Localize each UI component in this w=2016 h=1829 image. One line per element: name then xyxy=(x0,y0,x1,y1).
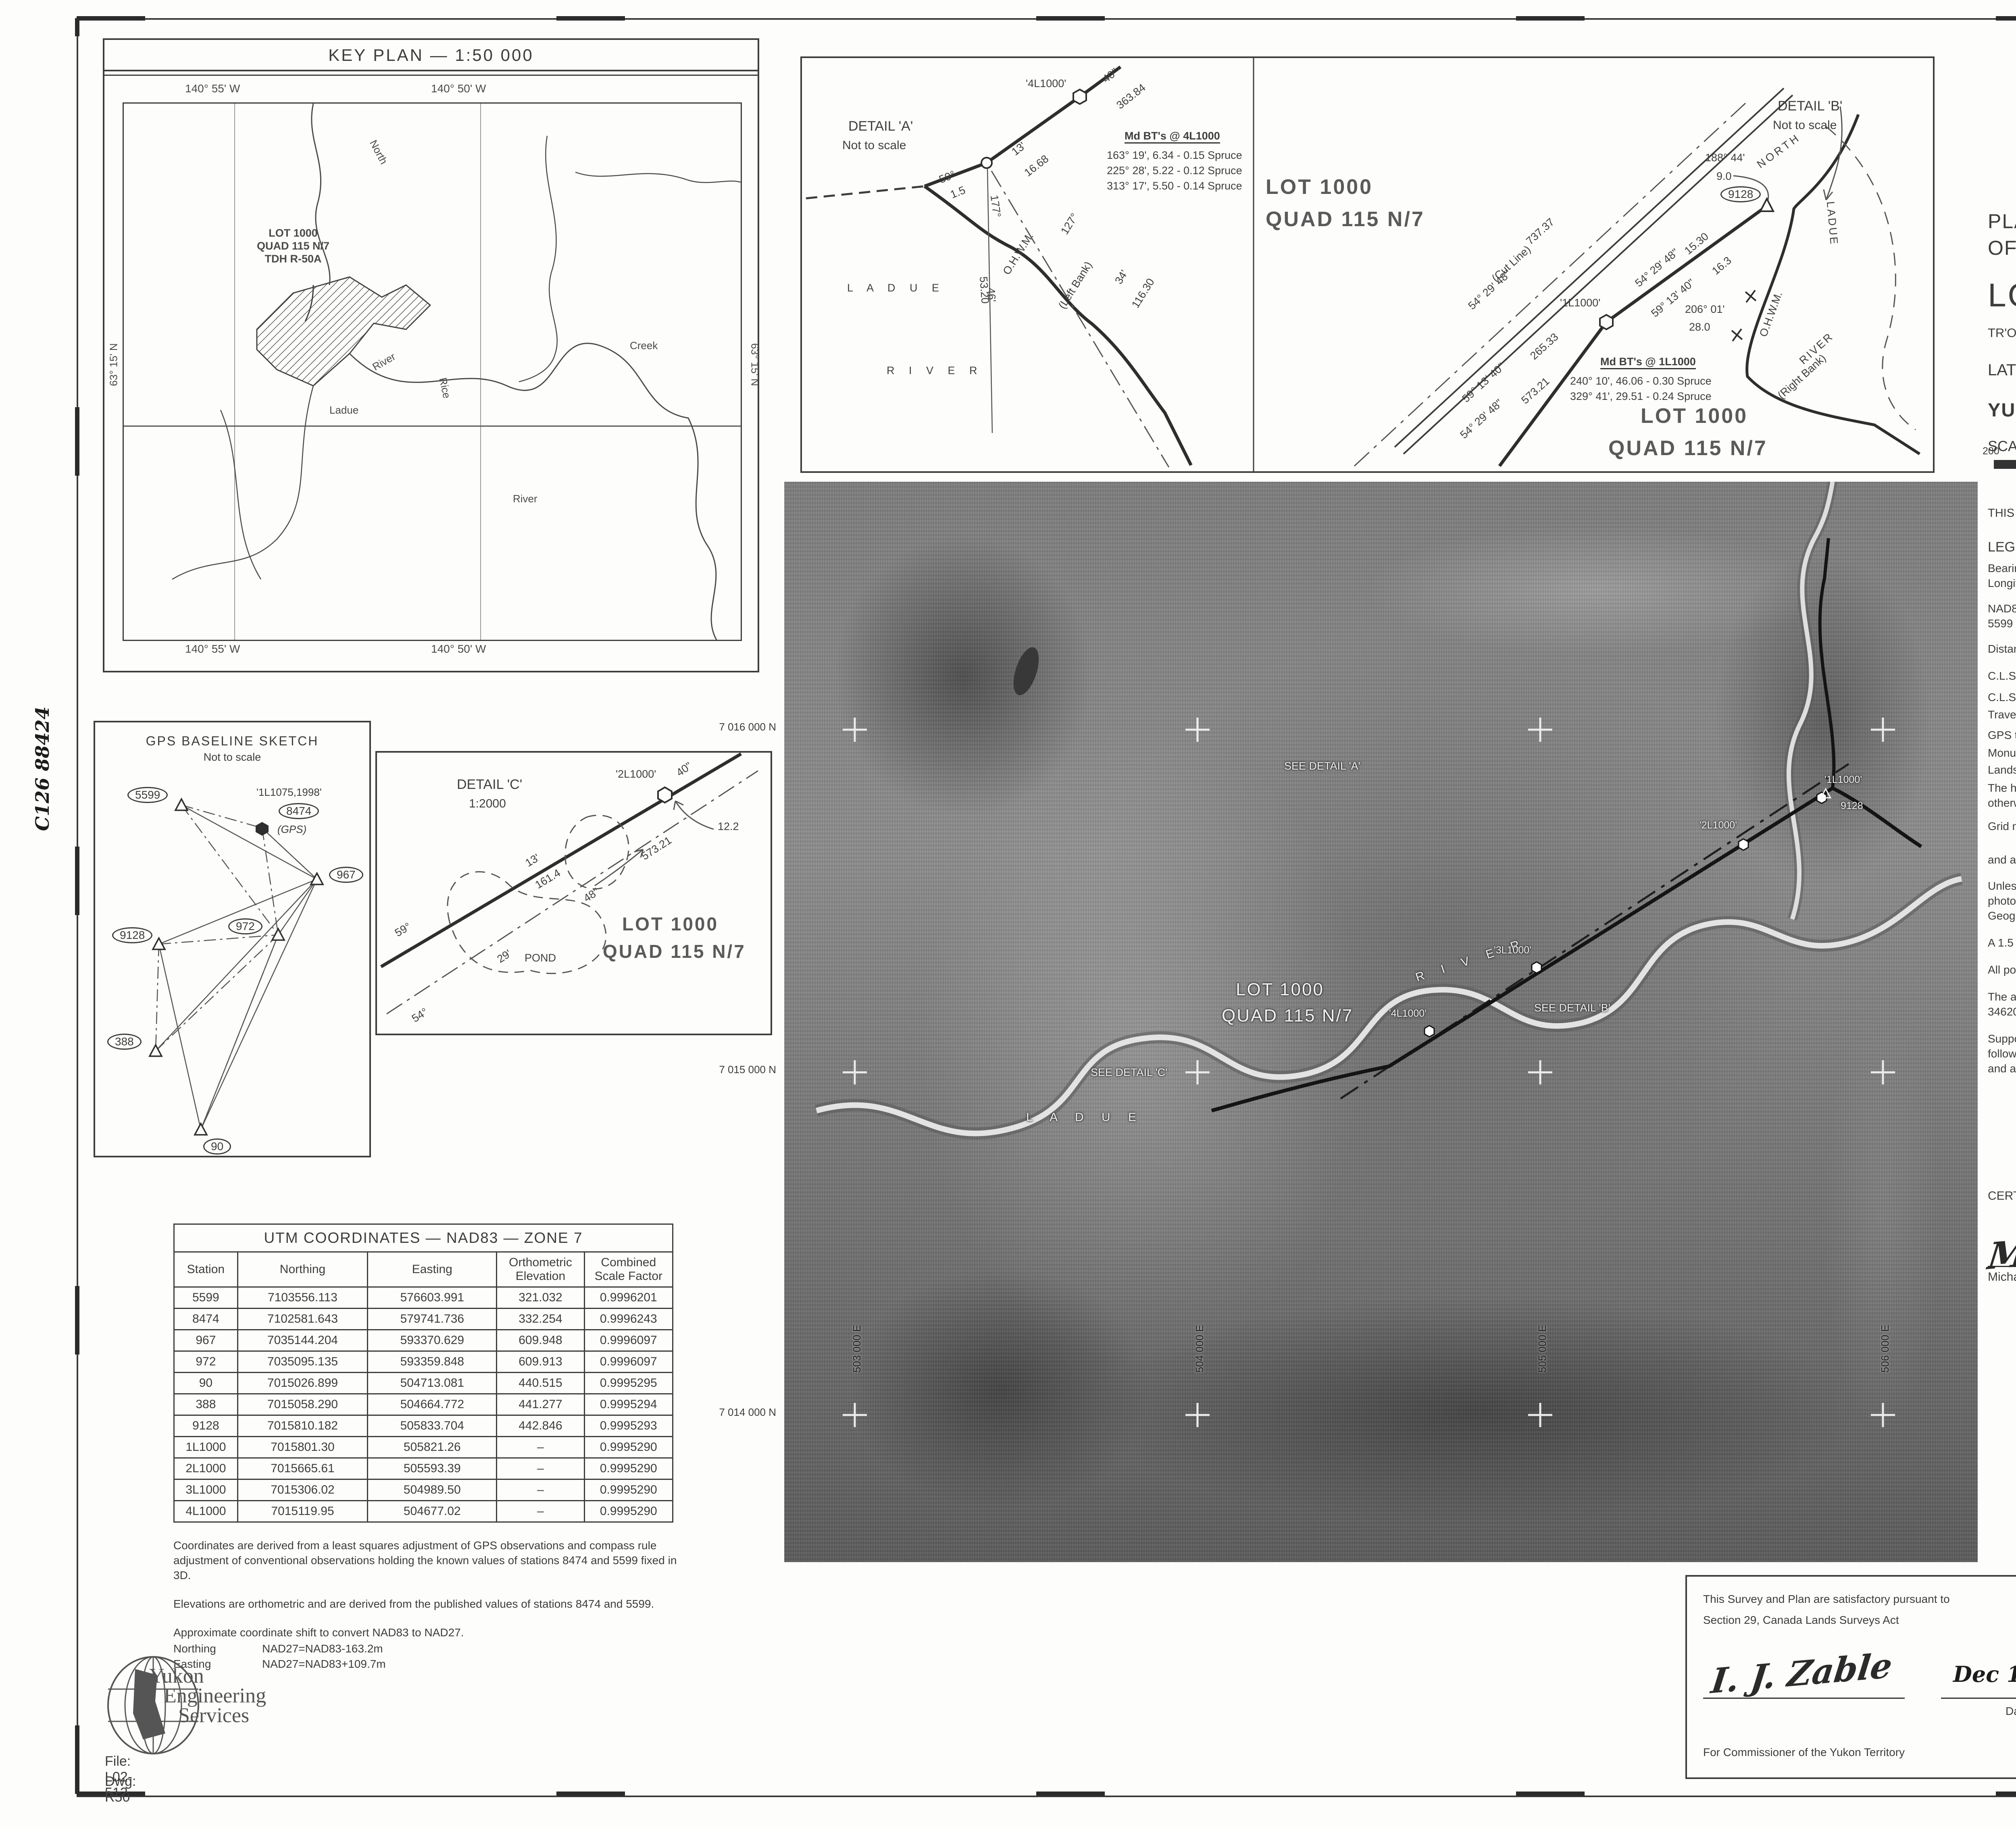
key-plan-title: KEY PLAN — 1:50 000 xyxy=(104,40,758,71)
utm-note-1: Coordinates are derived from a least squ… xyxy=(173,1538,677,1583)
commissioner-date-label: Date / xyxy=(2006,1705,2016,1718)
utm-col-easting: Easting xyxy=(368,1252,497,1287)
keyplan-lot-line1: LOT 1000 xyxy=(257,227,329,239)
legend-intro-1: Bearings are UTM Grid, derived from GPS … xyxy=(1988,561,2016,591)
scale-bar: 200 100 0 200 400 600 800 1000 metres xyxy=(1990,445,2016,474)
gps-station-8474: 8474 xyxy=(279,803,319,819)
keyplan-rice-creek xyxy=(519,136,557,382)
utm-table-row: 1L1000 7015801.30 505821.26 – 0.9995290 xyxy=(174,1437,673,1458)
legend-list: C.L.S. 77 Post found shown thus C.L.S. 7… xyxy=(1988,665,2016,776)
detail-a-bt-title: Md BT's @ 4L1000 xyxy=(1125,130,1220,144)
detail-b-title: DETAIL 'B' xyxy=(1778,98,1842,114)
keyplan-creeks-sw xyxy=(172,386,313,579)
detail-c-panel: DETAIL 'C' 1:2000 '2L1000' 40" 12.2 13' … xyxy=(375,751,772,1035)
shift-northing-value: NAD27=NAD83-163.2m xyxy=(262,1642,677,1655)
utm-cell-scale-factor: 0.9995294 xyxy=(584,1394,673,1415)
grid-note-line2: and are shown thus xyxy=(1988,853,2016,866)
keyplan-word-river-lower: River xyxy=(513,493,537,505)
photo-lot2: QUAD 115 N/7 xyxy=(1222,1006,1353,1026)
utm-col-scale-factor: Combined Scale Factor xyxy=(584,1252,673,1287)
keyplan-word-creek: Creek xyxy=(630,339,658,352)
detail-a-lot2: QUAD 115 N/7 xyxy=(1266,207,1425,231)
commissioner-for-label: For Commissioner of the Yukon Territory xyxy=(1703,1746,1905,1759)
legend-row-gps-suffix: Monuments occupied by GPS suffixed thus … xyxy=(1988,746,2016,759)
fold-ticks-left xyxy=(75,18,79,1794)
keyplan-lot-line2: QUAD 115 N/7 xyxy=(257,239,329,252)
detail-b-d280: 28.0 xyxy=(1689,321,1710,333)
photo-grid-crosses xyxy=(843,718,1895,1427)
utm-cell-easting: 579741.736 xyxy=(368,1309,497,1330)
utm-cell-station: 1L1000 xyxy=(174,1437,238,1458)
photo-see-detail-a: SEE DETAIL 'A' xyxy=(1284,760,1360,772)
utm-table-row: 972 7035095.135 593359.848 609.913 0.999… xyxy=(174,1351,673,1373)
commissioner-box: This Survey and Plan are satisfactory pu… xyxy=(1685,1575,2016,1779)
utm-table-row: 3L1000 7015306.02 504989.50 – 0.9995290 xyxy=(174,1479,673,1501)
surveyor-signature-area: M Kearney Michael T. Kearney C.L.S. xyxy=(1988,1226,2016,1284)
key-plan-title-rule xyxy=(104,71,758,76)
legend-row-post-found: C.L.S. 77 Post found shown thus xyxy=(1988,665,2016,682)
utm-cell-easting: 593359.848 xyxy=(368,1351,497,1373)
fold-ticks-bottom xyxy=(77,1792,2016,1796)
utm-cell-northing: 7103556.113 xyxy=(237,1287,368,1309)
photo-station-4l1000: '4L1000' xyxy=(1389,1008,1427,1020)
firm-name: Yukon Engineering Services xyxy=(149,1664,266,1727)
detail-a-d46: 46' xyxy=(985,287,998,302)
utm-cell-elevation: 442.846 xyxy=(497,1415,584,1437)
general-note: A 1.5 metre iron marker post and plaque … xyxy=(1988,935,2016,950)
utm-cell-easting: 593370.629 xyxy=(368,1330,497,1351)
utm-cell-station: 967 xyxy=(174,1330,238,1351)
detail-a-ladue: L A D U E xyxy=(847,282,945,294)
utm-table-row: 967 7035144.204 593370.629 609.948 0.999… xyxy=(174,1330,673,1351)
legend-row-traverse: Traverse lines and stations shown thus xyxy=(1988,708,2016,721)
photo-northing-7015: 7 015 000 N xyxy=(685,1063,776,1076)
utm-cell-northing: 7035144.204 xyxy=(237,1330,368,1351)
general-note: All posts placed in this survey have bee… xyxy=(1988,962,2016,977)
lot-title: LOT 1000, QUAD 115 N/7 xyxy=(1988,277,2016,314)
utm-cell-scale-factor: 0.9995293 xyxy=(584,1415,673,1437)
legend-label: C.L.S. 77 Post placed shown thus xyxy=(1988,691,2016,704)
photo-easting-506: 506 000 E xyxy=(1879,1325,1891,1373)
keyplan-lot-line3: TDH R-50A xyxy=(257,252,329,265)
photo-easting-504: 504 000 E xyxy=(1193,1325,1206,1373)
utm-cell-easting: 504989.50 xyxy=(368,1479,497,1501)
utm-table-row: 388 7015058.290 504664.772 441.277 0.999… xyxy=(174,1394,673,1415)
detail-c-station: '2L1000' xyxy=(616,768,656,780)
utm-note-3: Approximate coordinate shift to convert … xyxy=(173,1625,677,1640)
utm-cell-station: 2L1000 xyxy=(174,1458,238,1479)
utm-cell-northing: 7035095.135 xyxy=(237,1351,368,1373)
keyplan-creek xyxy=(575,172,741,183)
utm-cell-northing: 7015665.61 xyxy=(237,1458,368,1479)
legend-label: Monuments occupied by GPS suffixed thus xyxy=(1988,747,2016,759)
utm-cell-station: 388 xyxy=(174,1394,238,1415)
detail-a-post-4l1000 xyxy=(1073,89,1086,104)
left-margin-annotation: C126 88424 xyxy=(31,684,53,853)
gps-triangles xyxy=(150,799,323,1135)
legend-label: Lands dealt with by this plan bounded th… xyxy=(1988,764,2016,776)
detail-a-bt-item: 163° 19', 6.34 - 0.15 Spruce xyxy=(1107,148,1242,163)
keyplan-long-topright: 140° 50' W xyxy=(431,82,486,95)
certification-block: CERTIFIED CORRECT : Re: Canada Lands Sur… xyxy=(1988,1189,2016,1203)
utm-cell-scale-factor: 0.9995290 xyxy=(584,1501,673,1522)
photo-see-detail-b: SEE DETAIL 'B' xyxy=(1534,1002,1610,1014)
utm-table-body: 5599 7103556.113 576603.991 321.032 0.99… xyxy=(174,1287,673,1522)
utm-cell-elevation: 440.515 xyxy=(497,1373,584,1394)
utm-cell-elevation: 441.277 xyxy=(497,1394,584,1415)
gps-monument-8474 xyxy=(256,822,269,836)
fold-ticks-top xyxy=(77,16,2016,21)
photo-northing-7016: 7 016 000 N xyxy=(685,721,776,733)
keyplan-long-topleft: 140° 55' W xyxy=(185,82,240,95)
latlong-line: LATITUDE 63° 16', LONGITUDE 140° 54' (AP… xyxy=(1988,361,2016,379)
title-line2: OF SURVEY OF xyxy=(1988,236,2016,260)
photo-easting-503: 503 000 E xyxy=(851,1325,863,1373)
utm-cell-northing: 7015058.290 xyxy=(237,1394,368,1415)
utm-cell-station: 3L1000 xyxy=(174,1479,238,1501)
gps-station-967: 967 xyxy=(329,867,363,883)
scale-bar-segments xyxy=(1994,460,2016,469)
detail-b-bt-item: 240° 10', 46.06 - 0.30 Spruce xyxy=(1570,373,1712,389)
photo-station-2l1000: '2L1000' xyxy=(1699,820,1737,831)
detail-b-scale: Not to scale xyxy=(1773,119,1837,132)
gps-station-9128: 9128 xyxy=(112,927,152,943)
photo-see-detail-c: SEE DETAIL 'C' xyxy=(1091,1066,1167,1079)
detail-b-station-1l1000: '1L1000' xyxy=(1560,297,1600,309)
utm-col-elevation: Orthometric Elevation xyxy=(497,1252,584,1287)
utm-table: UTM COORDINATES — NAD83 — ZONE 7 Station… xyxy=(173,1223,673,1523)
legend-label: C.L.S. 77 Post found shown thus xyxy=(1988,670,2016,682)
utm-cell-scale-factor: 0.9995290 xyxy=(584,1458,673,1479)
detail-b-station-9128: 9128 xyxy=(1720,186,1761,202)
detail-b-d90: 9.0 xyxy=(1716,170,1732,183)
utm-table-row: 90 7015026.899 504713.081 440.515 0.9995… xyxy=(174,1373,673,1394)
detail-a-river: R I V E R xyxy=(887,364,983,377)
general-note: Support information is contained in supp… xyxy=(1988,1031,2016,1076)
detail-b-bt-list: 240° 10', 46.06 - 0.30 Spruce329° 41', 2… xyxy=(1570,373,1712,404)
detail-a-title: DETAIL 'A' xyxy=(848,119,913,134)
detail-c-traverse xyxy=(387,771,758,1014)
utm-cell-elevation: – xyxy=(497,1458,584,1479)
utm-cell-northing: 7015119.95 xyxy=(237,1501,368,1522)
gps-station-note: '1L1075,1998' xyxy=(256,786,322,799)
title-line1: PLAN AND FIELD NOTES xyxy=(1988,210,2016,233)
details-panel: DETAIL 'A' Not to scale '4L1000' 40" 363… xyxy=(800,56,1935,473)
detail-b-bt-title: Md BT's @ 1L1000 xyxy=(1600,356,1696,369)
utm-cell-scale-factor: 0.9996201 xyxy=(584,1287,673,1309)
keyplan-long-bottomright: 140° 50' W xyxy=(431,643,486,655)
detail-c-title: DETAIL 'C' xyxy=(457,777,522,793)
utm-table-row: 5599 7103556.113 576603.991 321.032 0.99… xyxy=(174,1287,673,1309)
keyplan-long-bottomleft: 140° 55' W xyxy=(185,643,240,655)
lot-subtitle: TR'ONDEK HWECH'IN SETTLEMENT LAND SELECT… xyxy=(1988,326,2016,340)
utm-cell-easting: 504677.02 xyxy=(368,1501,497,1522)
detail-b-station-9128-triangle xyxy=(1760,199,1773,211)
utm-table-row: 2L1000 7015665.61 505593.39 – 0.9995290 xyxy=(174,1458,673,1479)
commissioner-line2: Section 29, Canada Lands Surveys Act xyxy=(1703,1614,2016,1627)
detail-b-post-1l1000 xyxy=(1600,315,1613,329)
utm-cell-station: 9128 xyxy=(174,1415,238,1437)
general-notes: Unless shown otherwise on the body of th… xyxy=(1988,878,2016,1076)
keyplan-word-ladue: Ladue xyxy=(329,404,358,416)
utm-cell-scale-factor: 0.9995290 xyxy=(584,1437,673,1458)
utm-cell-elevation: – xyxy=(497,1501,584,1522)
detail-a-lot1: LOT 1000 xyxy=(1266,175,1373,199)
detail-c-pond: POND xyxy=(525,952,556,964)
utm-coordinates-section: UTM COORDINATES — NAD83 — ZONE 7 Station… xyxy=(173,1223,677,1671)
certified-correct-line: CERTIFIED CORRECT : Re: Canada Lands Sur… xyxy=(1988,1189,2016,1203)
utm-cell-elevation: 609.948 xyxy=(497,1330,584,1351)
utm-cell-scale-factor: 0.9996097 xyxy=(584,1351,673,1373)
detail-c-lot2: QUAD 115 N/7 xyxy=(603,941,746,962)
utm-cell-elevation: – xyxy=(497,1479,584,1501)
keyplan-lat-right: 63° 15' N xyxy=(749,343,761,386)
orthophoto: LOT 1000 QUAD 115 N/7 SEE DETAIL 'A' SEE… xyxy=(784,482,1978,1562)
firm-dwg: Dwg: R50 xyxy=(105,1774,136,1805)
photo-lot-boundary-north xyxy=(1820,538,1834,788)
keyplan-river-main xyxy=(350,343,716,640)
detail-a-bt-list: 163° 19', 6.34 - 0.15 Spruce225° 28', 5.… xyxy=(1107,148,1242,194)
gps-baseline-panel: GPS BASELINE SKETCH Not to scale xyxy=(94,721,371,1157)
legend-title: LEGEND : xyxy=(1988,539,2016,555)
utm-cell-station: 4L1000 xyxy=(174,1501,238,1522)
legend-row-bounded: Lands dealt with by this plan bounded th… xyxy=(1988,764,2016,776)
gps-station-388: 388 xyxy=(107,1034,142,1050)
utm-note-2: Elevations are orthometric and are deriv… xyxy=(173,1596,677,1611)
detail-a-bt-item: 225° 28', 5.22 - 0.12 Spruce xyxy=(1107,163,1242,178)
utm-cell-easting: 505821.26 xyxy=(368,1437,497,1458)
utm-cell-station: 5599 xyxy=(174,1287,238,1309)
detail-b-lot1: LOT 1000 xyxy=(1641,404,1748,428)
legend-label: GPS traverse stations shown thus xyxy=(1988,729,2016,742)
survey-plan-sheet: C126 88424 C126 88424 KEY PLAN — 1:50 00… xyxy=(0,0,2016,1829)
utm-table-row: 8474 7102581.643 579741.736 332.254 0.99… xyxy=(174,1309,673,1330)
legend-label: Traverse lines and stations shown thus xyxy=(1988,708,2016,721)
utm-cell-scale-factor: 0.9995290 xyxy=(584,1479,673,1501)
utm-table-row: 4L1000 7015119.95 504677.02 – 0.9995290 xyxy=(174,1501,673,1522)
utm-table-title: UTM COORDINATES — NAD83 — ZONE 7 xyxy=(174,1224,673,1252)
utm-table-row: 9128 7015810.182 505833.704 442.846 0.99… xyxy=(174,1415,673,1437)
detail-b-ang18844: 188° 44' xyxy=(1705,152,1745,164)
commissioner-date-rule xyxy=(1941,1698,2016,1699)
commissioner-date: Dec 17 / 2003 xyxy=(1953,1661,2016,1687)
utm-cell-northing: 7015026.899 xyxy=(237,1373,368,1394)
utm-cell-easting: 504664.772 xyxy=(368,1394,497,1415)
commissioner-signature: I. J. Zable xyxy=(1709,1645,1895,1702)
utm-cell-northing: 7015306.02 xyxy=(237,1479,368,1501)
commissioner-line1: This Survey and Plan are satisfactory pu… xyxy=(1703,1593,2016,1606)
utm-col-station: Station xyxy=(174,1252,238,1287)
legend-intro-2: NAD83 UTM coordinates (Zone 7) and ortho… xyxy=(1988,601,2016,631)
photo-station-3l1000: '3L1000' xyxy=(1494,945,1531,956)
utm-cell-station: 90 xyxy=(174,1373,238,1394)
utm-cell-scale-factor: 0.9996097 xyxy=(584,1330,673,1351)
photo-tarn xyxy=(1008,644,1044,698)
utm-cell-station: 8474 xyxy=(174,1309,238,1330)
utm-cell-northing: 7015810.182 xyxy=(237,1415,368,1437)
key-plan-panel: KEY PLAN — 1:50 000 140° 55' W 140° 50' … xyxy=(103,38,759,672)
grid-mark-note: Grid marks are referred to NAD83 UTM coo… xyxy=(1988,820,2016,866)
grid-note-line1: Grid marks are referred to NAD83 UTM coo… xyxy=(1988,820,2016,833)
utm-col-northing: Northing xyxy=(237,1252,368,1287)
detail-a-bt-item: 313° 17', 5.50 - 0.14 Spruce xyxy=(1107,178,1242,194)
scalebar-label-200l: 200 xyxy=(1983,445,1999,457)
title-block: PLAN AND FIELD NOTES OF SURVEY OF LOT 10… xyxy=(1988,210,2016,1076)
note-heavy-line: The heavy line depicting the natural bou… xyxy=(1988,780,2016,810)
photo-easting-505: 505 000 E xyxy=(1536,1325,1549,1373)
photo-station-9128: 9128 xyxy=(1841,800,1863,812)
detail-b-bt-item: 329° 41', 29.51 - 0.24 Spruce xyxy=(1570,389,1712,404)
general-note: The airborne GPS and aerial triangulatio… xyxy=(1988,989,2016,1019)
legend-row-gps-station: GPS traverse stations shown thus xyxy=(1988,725,2016,742)
utm-cell-elevation: – xyxy=(497,1437,584,1458)
key-plan-map: LOT 1000 QUAD 115 N/7 TDH R-50A North La… xyxy=(123,102,742,641)
legend-intro-3: Distances shown are horizontal at genera… xyxy=(1988,641,2016,656)
utm-cell-easting: 505833.704 xyxy=(368,1415,497,1437)
gps-station-5599: 5599 xyxy=(127,787,168,803)
keyplan-lot-label: LOT 1000 QUAD 115 N/7 TDH R-50A xyxy=(257,227,329,265)
detail-c-scale: 1:2000 xyxy=(469,797,506,811)
detail-c-d122: 12.2 xyxy=(718,820,739,833)
details-linework xyxy=(802,58,1933,471)
utm-cell-scale-factor: 0.9995295 xyxy=(584,1373,673,1394)
detail-a-ohwm xyxy=(925,186,1191,465)
scalebar-seg xyxy=(1995,461,2016,468)
utm-cell-easting: 576603.991 xyxy=(368,1287,497,1309)
executed-note: THIS SURVEY WAS EXECUTED ON JULY 13 AND … xyxy=(1988,505,2016,521)
photo-northing-7014: 7 014 000 N xyxy=(685,1406,776,1419)
keyplan-lot-polygon xyxy=(257,277,430,386)
utm-cell-station: 972 xyxy=(174,1351,238,1373)
shift-easting-value: NAD27=NAD83+109.7m xyxy=(262,1658,677,1671)
detail-c-linework xyxy=(377,753,771,1034)
detail-c-post-2l1000 xyxy=(658,787,672,803)
photo-ladue: L A D U E xyxy=(1026,1111,1143,1124)
photo-station-1l1000: '1L1000' xyxy=(1824,774,1862,786)
detail-b-ang20601: 206° 01' xyxy=(1685,303,1725,316)
utm-cell-easting: 504713.081 xyxy=(368,1373,497,1394)
detail-a-scale: Not to scale xyxy=(842,139,906,152)
key-plan-linework xyxy=(124,104,741,640)
utm-cell-elevation: 321.032 xyxy=(497,1287,584,1309)
detail-a-station-label: '4L1000' xyxy=(1026,77,1066,90)
utm-cell-northing: 7102581.643 xyxy=(237,1309,368,1330)
territory-line: YUKON TERRITORY xyxy=(1988,399,2016,421)
utm-cell-scale-factor: 0.9996243 xyxy=(584,1309,673,1330)
photo-overlay-linework xyxy=(784,482,1978,1562)
utm-cell-elevation: 609.913 xyxy=(497,1351,584,1373)
detail-c-lot1: LOT 1000 xyxy=(622,913,719,935)
detail-b-ohwm xyxy=(1747,114,1920,454)
legend-row-post-placed: C.L.S. 77 Post placed shown thus xyxy=(1988,687,2016,704)
keyplan-lat-left: 63° 15' N xyxy=(108,343,120,386)
detail-b-lot2: QUAD 115 N/7 xyxy=(1608,436,1768,460)
commissioner-sig-rule xyxy=(1703,1698,1905,1699)
gps-suffix-label: (GPS) xyxy=(277,823,306,836)
gps-station-90: 90 xyxy=(203,1138,231,1155)
photo-lot1: LOT 1000 xyxy=(1236,980,1324,1000)
general-note: Unless shown otherwise on the body of th… xyxy=(1988,878,2016,923)
utm-table-header: Station Northing Easting Orthometric Ele… xyxy=(174,1252,673,1287)
utm-cell-easting: 505593.39 xyxy=(368,1458,497,1479)
utm-cell-northing: 7015801.30 xyxy=(237,1437,368,1458)
utm-cell-elevation: 332.254 xyxy=(497,1309,584,1330)
gps-station-972: 972 xyxy=(228,918,262,934)
